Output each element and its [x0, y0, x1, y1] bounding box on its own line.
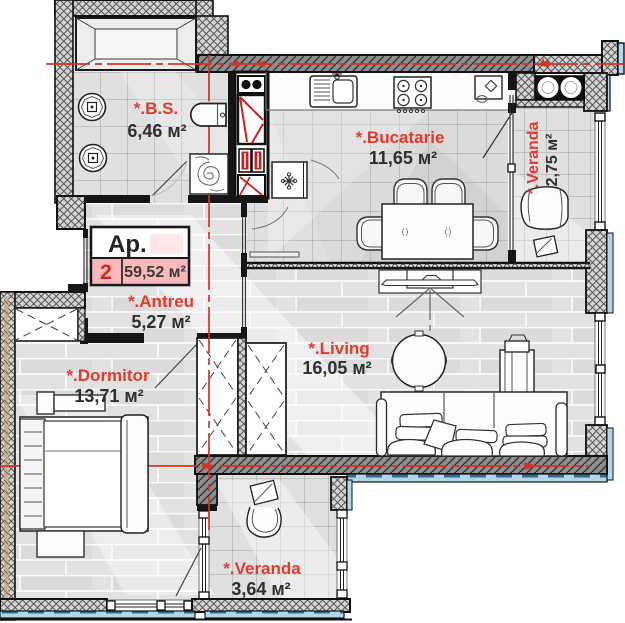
svg-text:6,46 м²: 6,46 м² — [127, 121, 186, 141]
svg-text:2,75 м²: 2,75 м² — [544, 134, 561, 187]
svg-text:13,71 м²: 13,71 м² — [74, 386, 143, 406]
svg-text:16,05 м²: 16,05 м² — [302, 358, 371, 378]
svg-text:*.Veranda: *.Veranda — [525, 121, 542, 194]
svg-text:Ap.: Ap. — [108, 231, 147, 258]
svg-text:59,52 м²: 59,52 м² — [124, 264, 186, 281]
svg-text:3,64 м²: 3,64 м² — [231, 579, 290, 599]
svg-text:11,65 м²: 11,65 м² — [369, 148, 437, 168]
svg-text:*.Dormitor: *.Dormitor — [66, 366, 150, 385]
svg-text:*.Bucatarie: *.Bucatarie — [356, 128, 445, 147]
svg-text:*.Veranda: *.Veranda — [223, 559, 301, 578]
svg-text:5,27 м²: 5,27 м² — [131, 312, 190, 332]
svg-text:*.B.S.: *.B.S. — [134, 99, 178, 118]
svg-text:*.Antreu: *.Antreu — [128, 292, 194, 311]
svg-text:*.Living: *.Living — [308, 339, 369, 358]
svg-text:2: 2 — [100, 261, 112, 284]
